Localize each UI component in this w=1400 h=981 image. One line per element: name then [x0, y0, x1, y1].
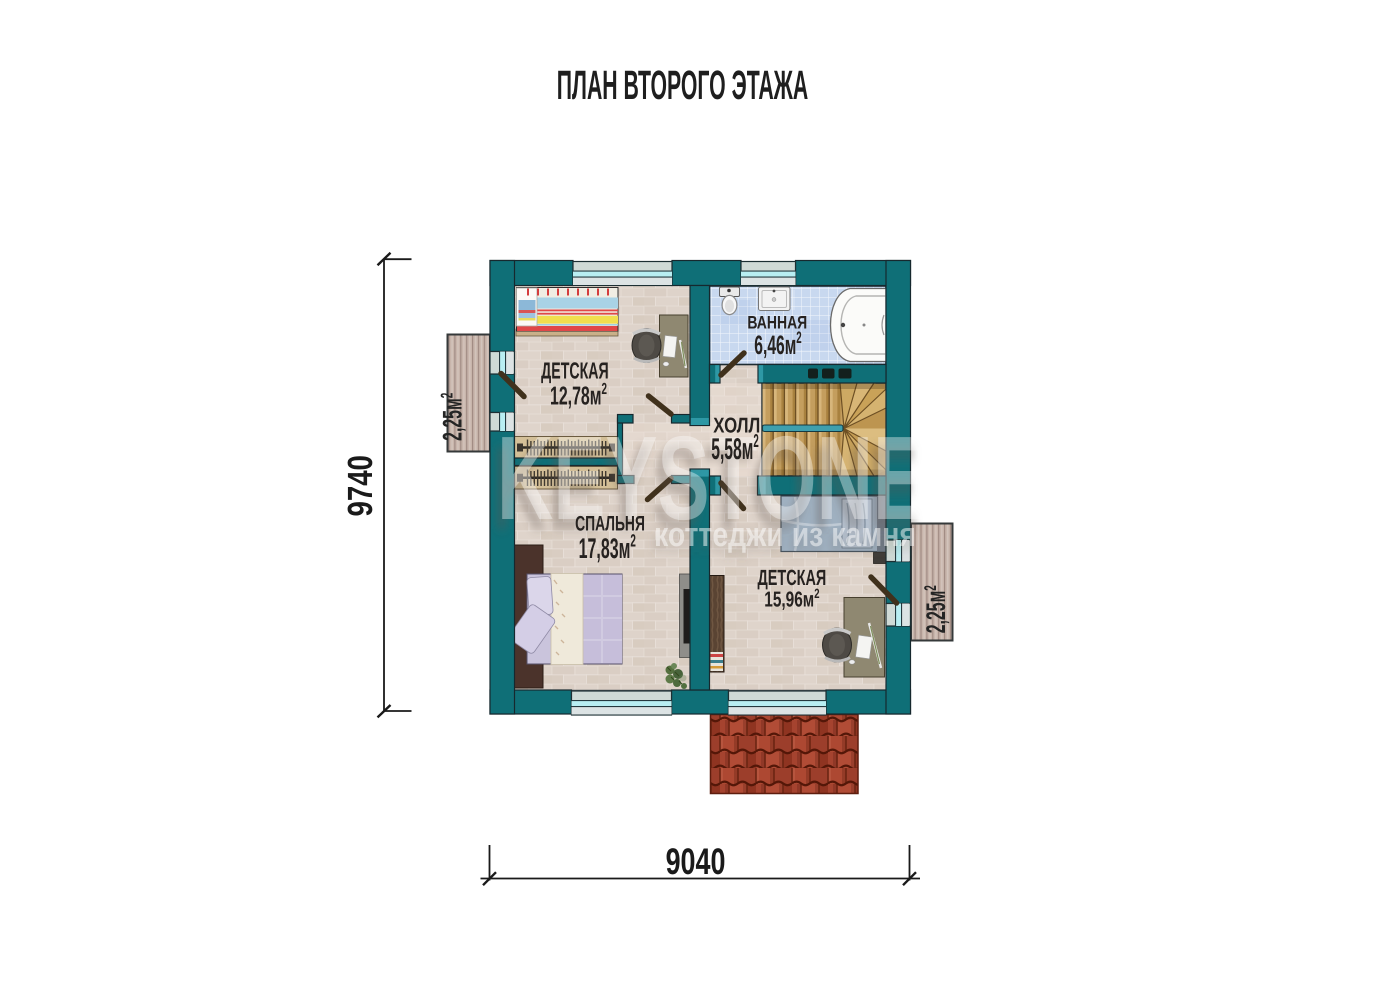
svg-text:2,25м2: 2,25м2 — [921, 585, 951, 633]
svg-text:ПЛАН ВТОРОГО ЭТАЖА: ПЛАН ВТОРОГО ЭТАЖА — [557, 62, 808, 108]
svg-text:9740: 9740 — [341, 455, 380, 516]
svg-text:15,96м2: 15,96м2 — [764, 586, 819, 612]
svg-text:6,46м2: 6,46м2 — [754, 328, 801, 360]
svg-text:коттеджи из камня: коттеджи из камня — [654, 516, 916, 554]
svg-text:5,58м2: 5,58м2 — [711, 430, 759, 466]
svg-text:12,78м2: 12,78м2 — [550, 380, 607, 410]
svg-text:2,25м2: 2,25м2 — [438, 393, 468, 441]
svg-text:17,83м2: 17,83м2 — [579, 531, 636, 565]
svg-text:9040: 9040 — [666, 841, 726, 882]
